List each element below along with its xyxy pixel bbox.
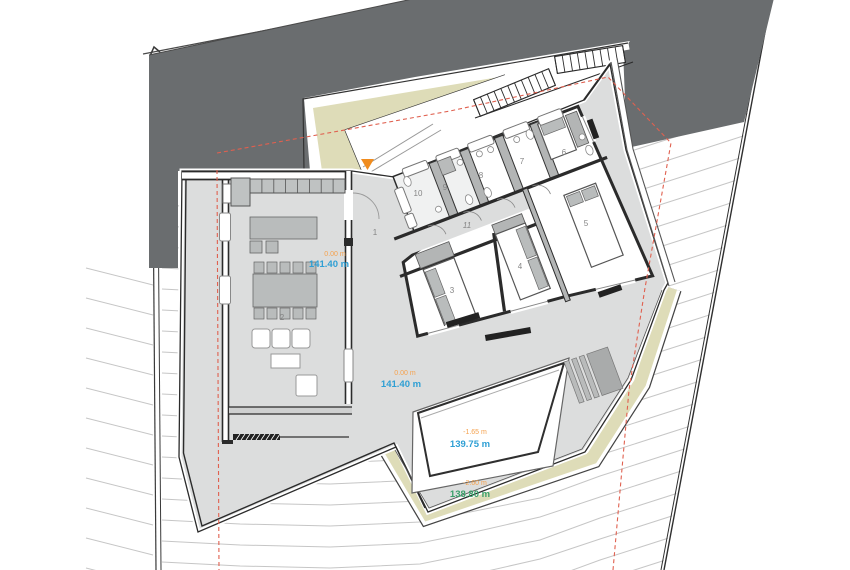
svg-text:4: 4 bbox=[518, 262, 523, 271]
svg-text:141.40 m: 141.40 m bbox=[309, 259, 349, 270]
svg-text:6: 6 bbox=[562, 148, 567, 157]
svg-text:0.00 m: 0.00 m bbox=[394, 370, 416, 377]
svg-text:141.40 m: 141.40 m bbox=[381, 379, 421, 390]
svg-text:9: 9 bbox=[443, 183, 448, 192]
svg-text:-1.65 m: -1.65 m bbox=[463, 429, 487, 436]
svg-text:3: 3 bbox=[450, 286, 455, 295]
svg-text:138.80 m: 138.80 m bbox=[450, 489, 490, 500]
svg-text:7: 7 bbox=[520, 157, 525, 166]
svg-text:11: 11 bbox=[463, 221, 471, 230]
svg-text:2: 2 bbox=[280, 313, 285, 322]
svg-text:10: 10 bbox=[414, 189, 423, 198]
svg-text:139.75 m: 139.75 m bbox=[450, 439, 490, 450]
svg-text:-2.60 m: -2.60 m bbox=[463, 480, 487, 487]
svg-text:8: 8 bbox=[479, 171, 484, 180]
svg-text:1: 1 bbox=[373, 228, 378, 237]
svg-text:5: 5 bbox=[584, 219, 589, 228]
svg-text:0.00 m: 0.00 m bbox=[324, 251, 346, 258]
